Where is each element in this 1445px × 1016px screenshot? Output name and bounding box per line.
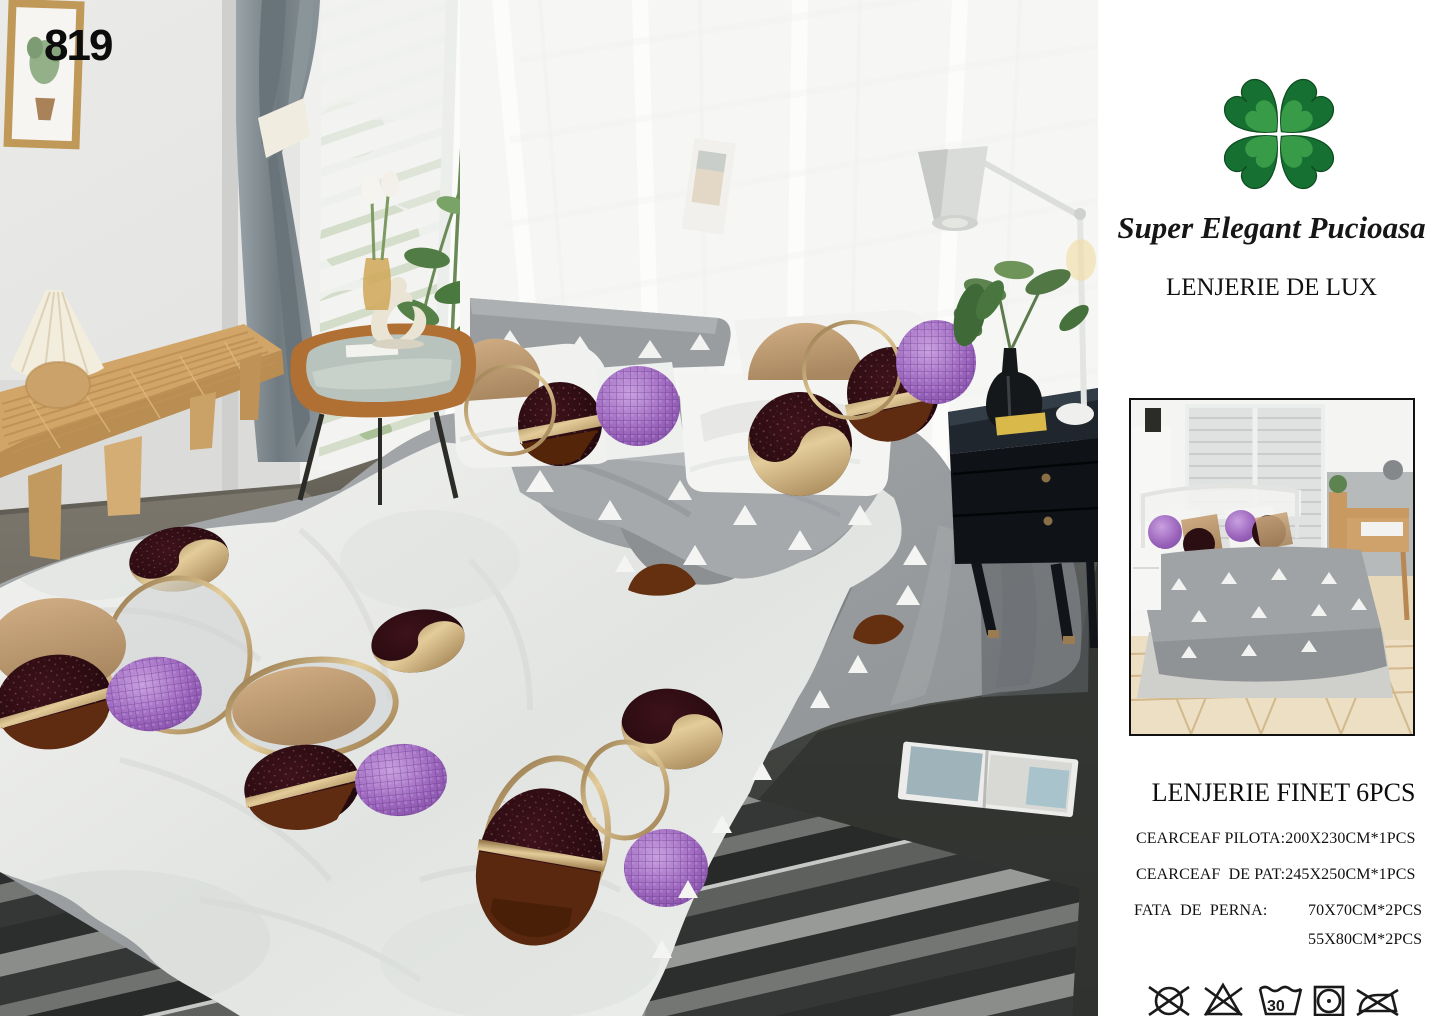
svg-text:30: 30 — [1267, 998, 1285, 1015]
svg-text:819: 819 — [44, 21, 112, 70]
